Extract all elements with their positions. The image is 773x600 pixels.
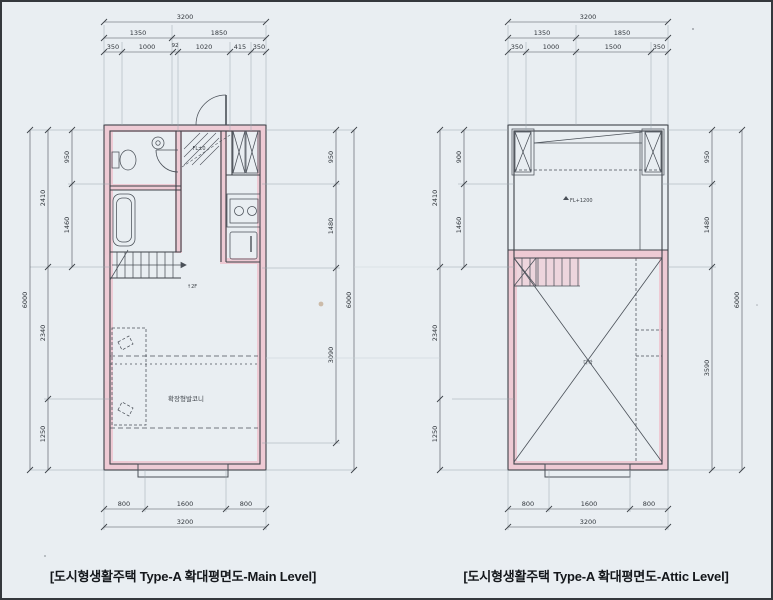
dim-label: 2340 [39,325,47,342]
dim-label: 2410 [39,190,47,207]
dim-label: 1600 [177,500,194,508]
dim-label: 1480 [327,218,335,235]
dim-label: 1480 [703,217,711,234]
dim-label: 1000 [543,43,560,51]
dim-label: 6000 [21,292,29,309]
balcony-label: 확장형발코니 [168,394,204,403]
dim-label: 2410 [431,190,439,207]
dim-label: 1460 [63,217,71,234]
attic-dimension-labels: 3200 1350 1850 350 1000 1500 350 800 160… [431,13,741,526]
attic-fixtures [512,129,664,477]
dim-label: 6000 [733,292,741,309]
dim-label: 1350 [130,29,147,37]
dim-label: 1250 [431,426,439,443]
void-open-to-below [514,131,662,250]
dim-label: 350 [511,43,523,51]
closet-icon [233,131,258,173]
dim-label: 3200 [177,518,194,526]
main-dimension-ticks [27,19,357,530]
main-level-plan: 3200 1350 1850 350 1000 92 1020 415 350 … [21,13,357,530]
dim-label: 1850 [211,29,228,37]
dim-label: 350 [253,43,265,51]
dim-label: 800 [643,500,655,508]
balcony-extension-lines [110,356,258,428]
dim-label: 3200 [177,13,194,21]
entry-level-label: FL±0 [192,146,205,152]
dim-label: 950 [703,151,711,163]
attic-extension-lines [440,25,742,530]
fridge-icon [230,232,257,259]
dim-label: 800 [118,500,130,508]
dim-label: 92 [171,43,178,49]
dim-label: 950 [327,151,335,163]
dim-label: 3590 [703,360,711,377]
dim-label: 415 [234,43,246,51]
dim-label: 3200 [580,13,597,21]
drawing-canvas: 3200 1350 1850 350 1000 92 1020 415 350 … [0,0,773,600]
caption-attic-level: [도시형생활주택 Type-A 확대평면도-Attic Level] [428,566,764,585]
main-walls [104,125,266,470]
bathtub-icon [113,194,135,246]
entrance-door-icon [196,95,226,125]
dim-label: 950 [63,151,71,163]
dim-label: 3200 [580,518,597,526]
dim-label: 1850 [614,29,631,37]
dim-label: 6000 [345,292,353,309]
attic-dimension-ticks [437,19,745,530]
dim-label: 1460 [455,217,463,234]
bathroom-door-arc [156,150,178,172]
closet-icon [642,129,664,175]
stairs-main [110,250,186,280]
stairs-up-label: ↑2F [187,284,197,290]
dim-label: 1020 [196,43,213,51]
void-level-label: FL+1200 [570,198,593,204]
dim-label: 1600 [581,500,598,508]
sofa-outline [112,328,146,425]
attic-room-label: 다락 [583,359,593,366]
dim-label: 1000 [139,43,156,51]
dim-label: 2340 [431,325,439,342]
dim-label: 1500 [605,43,622,51]
stove-icon [227,194,260,227]
toilet-icon [112,150,136,170]
attic-walls [508,125,668,470]
dim-label: 800 [240,500,252,508]
dim-label: 900 [455,151,463,163]
main-dimension-lines [30,22,354,527]
main-dimension-labels: 3200 1350 1850 350 1000 92 1020 415 350 … [21,13,353,526]
closet-icon [512,129,534,175]
dim-label: 1350 [534,29,551,37]
scanned-floor-plan-sheet: 3200 1350 1850 350 1000 92 1020 415 350 … [0,0,773,600]
dim-label: 1250 [39,426,47,443]
caption-main-level: [도시형생활주택 Type-A 확대평면도-Main Level] [18,566,348,585]
dim-label: 350 [653,43,665,51]
main-wall-highlights [104,125,266,470]
level-marker-icon [563,196,569,200]
main-extension-lines [30,25,354,530]
dim-label: 350 [107,43,119,51]
attic-level-plan: 3200 1350 1850 350 1000 1500 350 800 160… [431,13,745,530]
sink-icon [152,137,164,149]
main-fixtures [110,95,260,477]
attic-dimension-lines [440,22,742,527]
dim-label: 3090 [327,347,335,364]
scan-artifacts [44,28,758,557]
dim-label: 800 [522,500,534,508]
